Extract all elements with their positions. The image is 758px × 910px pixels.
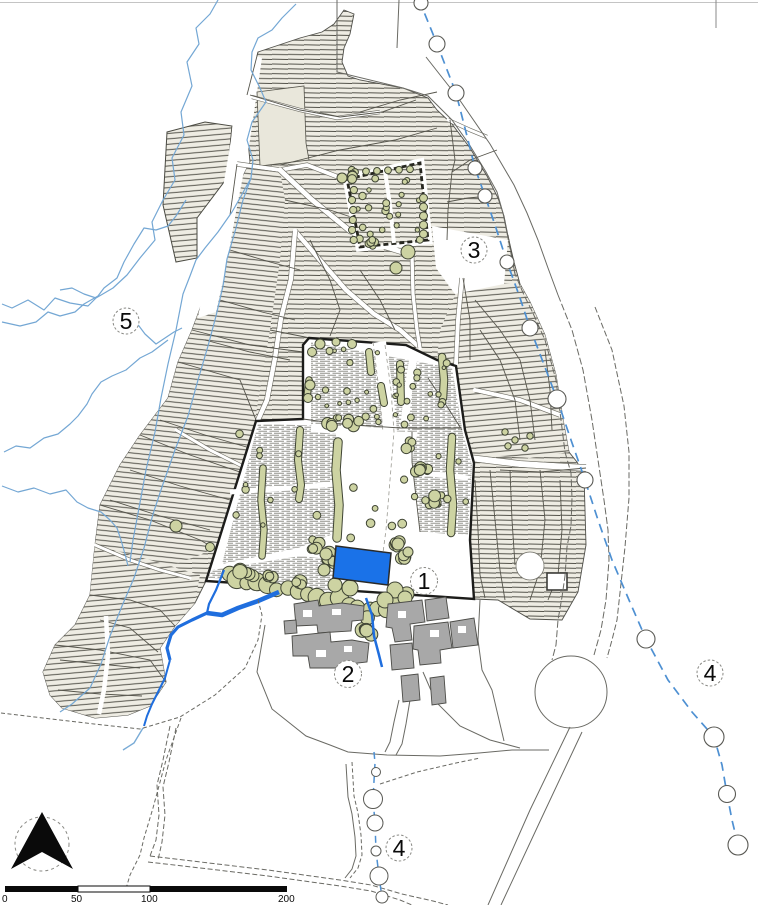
svg-text:0: 0 — [2, 894, 8, 905]
svg-text:4: 4 — [704, 660, 717, 686]
svg-text:3: 3 — [468, 237, 481, 263]
svg-text:200: 200 — [278, 894, 295, 905]
svg-text:100: 100 — [141, 894, 158, 905]
svg-text:4: 4 — [393, 835, 406, 861]
svg-text:5: 5 — [120, 308, 133, 334]
svg-text:2: 2 — [342, 661, 355, 687]
svg-text:1: 1 — [418, 568, 431, 594]
svg-text:50: 50 — [71, 894, 83, 905]
